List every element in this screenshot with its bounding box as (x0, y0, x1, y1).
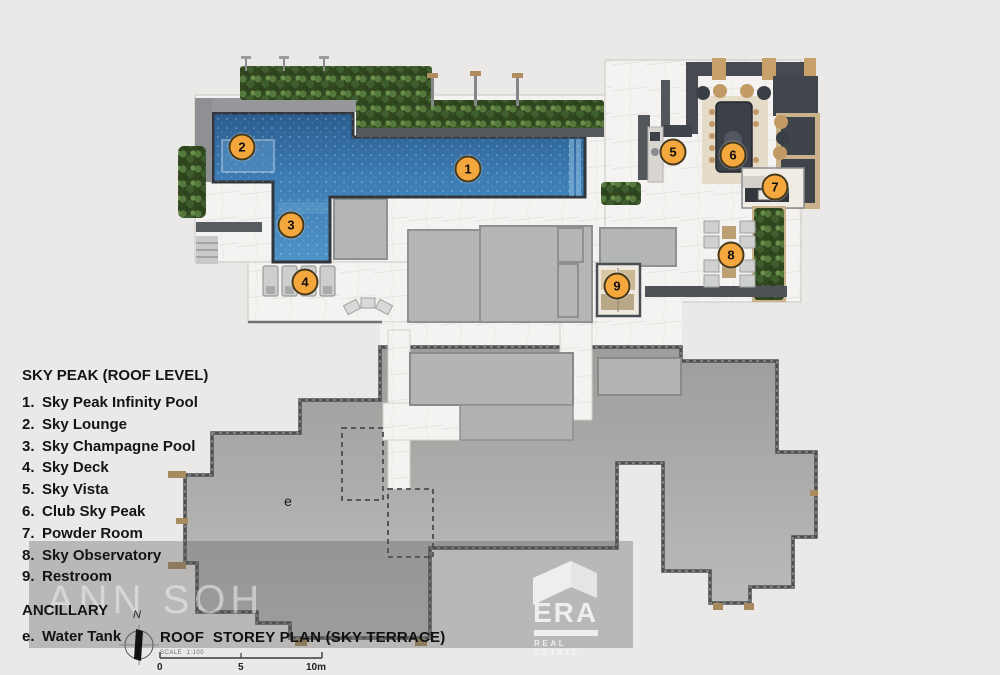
marker-club-sky-peak: 6 (720, 142, 747, 169)
scale-bar (150, 648, 350, 662)
legend-item-9: 9.Restroom (22, 568, 208, 590)
marker-sky-deck: 4 (292, 269, 319, 296)
era-logo: ERA REAL ESTATE (526, 553, 606, 653)
era-bar (534, 630, 598, 636)
marker-restroom: 9 (604, 273, 631, 300)
scale-tick-10m: 10m (306, 662, 326, 673)
legend-item-5: 5.Sky Vista (22, 481, 208, 503)
legend: SKY PEAK (ROOF LEVEL) 1.Sky Peak Infinit… (22, 367, 208, 650)
era-wordmark: ERA (533, 597, 598, 629)
legend-item-2: 2.Sky Lounge (22, 416, 208, 438)
plan-title: ROOF STOREY PLAN (SKY TERRACE) (160, 629, 445, 646)
marker-powder-room: 7 (762, 174, 789, 201)
legend-item-6: 6.Club Sky Peak (22, 503, 208, 525)
marker-champagne-pool: 3 (278, 212, 305, 239)
screenshot-root: e (0, 0, 1000, 675)
scale-tick-0: 0 (157, 662, 163, 673)
north-label: N (133, 609, 141, 621)
marker-sky-observatory: 8 (718, 242, 745, 269)
legend-item-7: 7.Powder Room (22, 525, 208, 547)
scale-tick-5: 5 (238, 662, 244, 673)
era-tagline: REAL ESTATE (534, 639, 606, 657)
marker-sky-vista: 5 (660, 139, 687, 166)
legend-item-1: 1.Sky Peak Infinity Pool (22, 394, 208, 416)
legend-item-8: 8.Sky Observatory (22, 547, 208, 569)
marker-infinity-pool: 1 (455, 156, 482, 183)
legend-item-3: 3.Sky Champagne Pool (22, 438, 208, 460)
ancillary-title: ANCILLARY (22, 602, 208, 619)
legend-item-4: 4.Sky Deck (22, 459, 208, 481)
legend-title: SKY PEAK (ROOF LEVEL) (22, 367, 208, 384)
water-tank-label: e (284, 493, 292, 509)
marker-sky-lounge: 2 (229, 134, 256, 161)
